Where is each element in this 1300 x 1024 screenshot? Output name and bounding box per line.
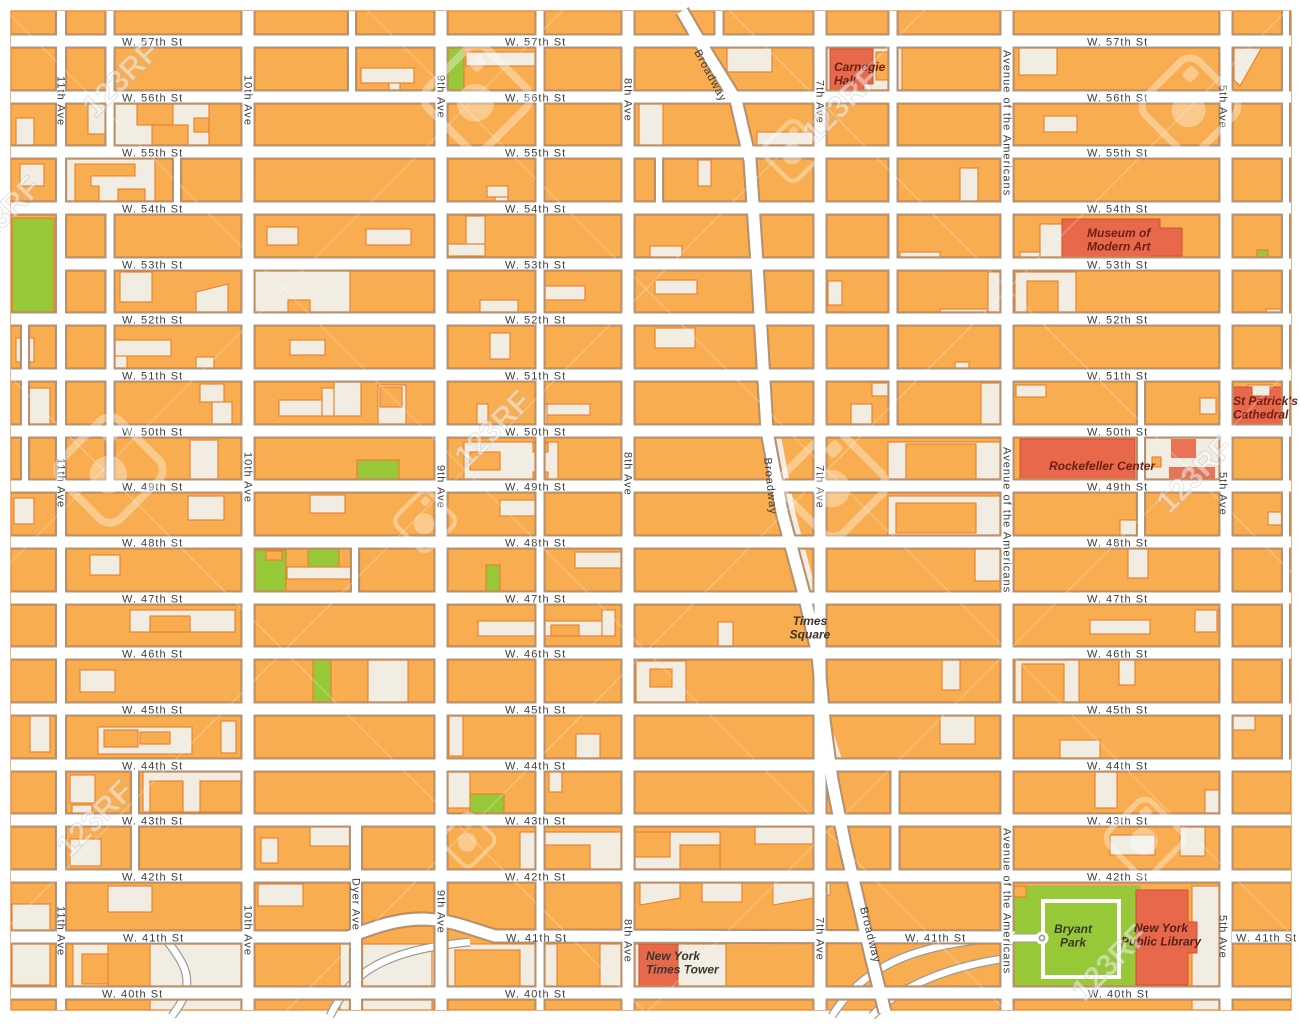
svg-text:W. 56th St: W. 56th St — [505, 93, 566, 105]
svg-text:St Patrick's: St Patrick's — [1233, 394, 1298, 408]
svg-text:5th Ave: 5th Ave — [1217, 472, 1229, 516]
svg-text:Bryant: Bryant — [1054, 922, 1093, 936]
svg-text:W. 40th St: W. 40th St — [102, 989, 163, 1001]
svg-text:Avenue of the Americans: Avenue of the Americans — [1001, 828, 1013, 974]
svg-text:W. 41th St: W. 41th St — [506, 933, 567, 945]
svg-text:Avenue of the Americans: Avenue of the Americans — [1001, 50, 1013, 196]
svg-text:W. 47th St: W. 47th St — [1087, 594, 1148, 606]
svg-text:W. 46th St: W. 46th St — [1087, 649, 1148, 661]
svg-text:W. 54th St: W. 54th St — [122, 204, 183, 216]
svg-text:W. 52th St: W. 52th St — [122, 315, 183, 327]
svg-text:Museum of: Museum of — [1087, 226, 1151, 240]
svg-text:Park: Park — [1060, 936, 1087, 950]
svg-text:8th Ave: 8th Ave — [622, 452, 634, 496]
svg-text:W. 47th St: W. 47th St — [505, 594, 566, 606]
svg-text:11th Ave: 11th Ave — [55, 76, 67, 126]
svg-text:W. 45th St: W. 45th St — [1087, 705, 1148, 717]
svg-text:W. 51th St: W. 51th St — [122, 371, 183, 383]
svg-text:W. 51th St: W. 51th St — [505, 371, 566, 383]
svg-text:W. 43th St: W. 43th St — [122, 816, 183, 828]
svg-text:Rockefeller Center: Rockefeller Center — [1049, 459, 1156, 473]
svg-text:W. 44th St: W. 44th St — [122, 761, 183, 773]
svg-text:W. 42th St: W. 42th St — [122, 872, 183, 884]
svg-text:W. 57th St: W. 57th St — [505, 37, 566, 49]
svg-text:10th Ave: 10th Ave — [242, 452, 254, 503]
svg-text:W. 46th St: W. 46th St — [122, 649, 183, 661]
svg-text:Square: Square — [790, 628, 831, 642]
svg-text:W. 41th St: W. 41th St — [1236, 933, 1297, 945]
svg-text:W. 56th St: W. 56th St — [122, 93, 183, 105]
svg-text:7th Ave: 7th Ave — [814, 917, 826, 961]
svg-text:W. 52th St: W. 52th St — [1087, 315, 1148, 327]
svg-text:Dyer Ave: Dyer Ave — [350, 878, 362, 931]
svg-text:Times Tower: Times Tower — [646, 963, 720, 977]
svg-text:11th Ave: 11th Ave — [55, 906, 67, 956]
svg-text:W. 49th St: W. 49th St — [505, 482, 566, 494]
svg-text:Times: Times — [793, 614, 828, 628]
svg-text:10th Ave: 10th Ave — [242, 75, 254, 126]
svg-text:8th Ave: 8th Ave — [622, 919, 634, 963]
svg-text:10th Ave: 10th Ave — [242, 905, 254, 956]
svg-text:W. 50th St: W. 50th St — [1087, 427, 1148, 439]
svg-text:W. 47th St: W. 47th St — [122, 594, 183, 606]
svg-text:W. 52th St: W. 52th St — [505, 315, 566, 327]
svg-text:W. 43th St: W. 43th St — [505, 816, 566, 828]
svg-text:W. 54th St: W. 54th St — [505, 204, 566, 216]
svg-text:W. 53th St: W. 53th St — [122, 260, 183, 272]
svg-text:W. 48th St: W. 48th St — [1087, 538, 1148, 550]
svg-text:Modern Art: Modern Art — [1087, 240, 1152, 254]
svg-text:Avenue of the Americans: Avenue of the Americans — [1001, 447, 1013, 593]
svg-text:W. 45th St: W. 45th St — [505, 705, 566, 717]
svg-text:W. 41th St: W. 41th St — [123, 933, 184, 945]
svg-text:W. 53th St: W. 53th St — [1087, 260, 1148, 272]
svg-text:W. 48th St: W. 48th St — [122, 538, 183, 550]
svg-text:W. 48th St: W. 48th St — [505, 538, 566, 550]
svg-text:W. 57th St: W. 57th St — [1087, 37, 1148, 49]
svg-text:W. 53th St: W. 53th St — [505, 260, 566, 272]
svg-text:W. 45th St: W. 45th St — [122, 705, 183, 717]
svg-text:5th Ave: 5th Ave — [1217, 915, 1229, 959]
svg-text:Cathedral: Cathedral — [1233, 408, 1289, 422]
svg-text:9th Ave: 9th Ave — [435, 890, 447, 934]
svg-text:W. 40th St: W. 40th St — [505, 989, 566, 1001]
svg-text:W. 49th St: W. 49th St — [1087, 482, 1148, 494]
svg-text:W. 54th St: W. 54th St — [1087, 204, 1148, 216]
svg-text:W. 46th St: W. 46th St — [505, 649, 566, 661]
svg-text:W. 44th St: W. 44th St — [505, 761, 566, 773]
svg-text:W. 44th St: W. 44th St — [1087, 761, 1148, 773]
svg-text:8th Ave: 8th Ave — [622, 78, 634, 122]
svg-text:New York: New York — [646, 949, 701, 963]
svg-text:W. 41th St: W. 41th St — [905, 933, 966, 945]
